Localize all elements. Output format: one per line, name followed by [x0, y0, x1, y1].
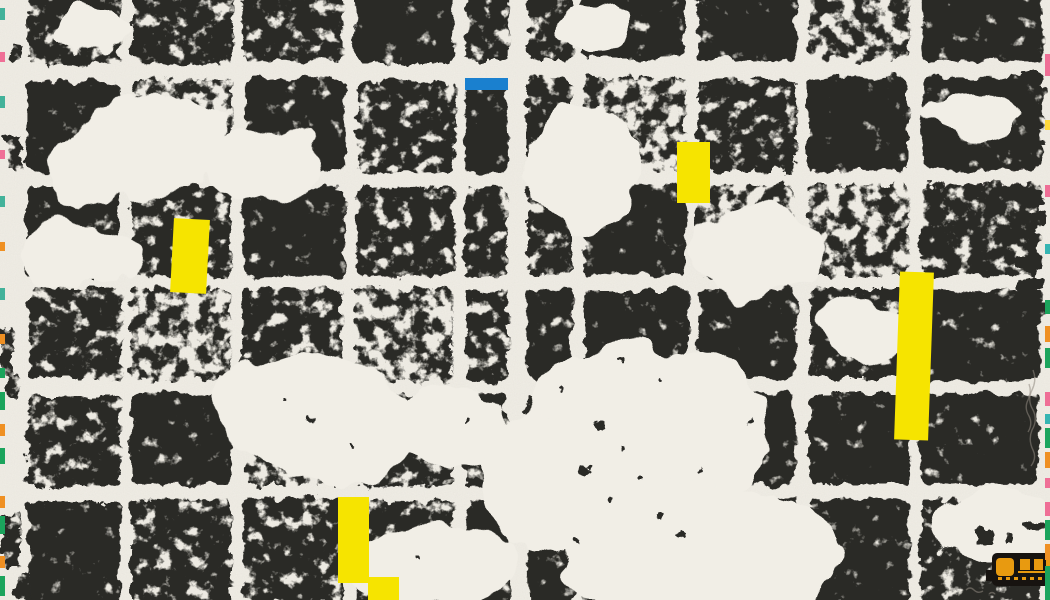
grid-cell [923, 0, 1042, 60]
edge-registration-strip-left [0, 368, 5, 378]
grid-cell [920, 393, 1039, 484]
edge-registration-strip-left [0, 448, 5, 464]
train-glyph-dot [998, 577, 1002, 580]
grid-cell [808, 184, 909, 275]
margin-ink-smudge [0, 326, 13, 372]
ink-speckle [348, 443, 352, 447]
margin-ink-smudge [16, 574, 30, 600]
ink-speckle [607, 497, 613, 503]
edge-registration-strip-right [1045, 392, 1050, 406]
edge-registration-strip-left [0, 424, 5, 436]
blue-tape-mark [465, 78, 508, 90]
edge-registration-strip-left [0, 576, 5, 596]
grid-cell [30, 289, 122, 380]
artwork-photo [0, 0, 1050, 600]
ink-void [485, 410, 605, 550]
grid-cell [133, 0, 233, 63]
ink-speckle [619, 445, 625, 451]
grid-cell [243, 0, 343, 60]
grid-cell [28, 395, 120, 486]
yellow-tape-mark [170, 218, 210, 294]
edge-registration-strip-left [0, 556, 5, 568]
train-glyph-dot [1022, 577, 1026, 580]
margin-ink-smudge [7, 372, 18, 398]
edge-registration-strip-left [0, 242, 5, 251]
ink-speckle [677, 532, 683, 538]
grid-cell [244, 498, 344, 600]
grid-cell [921, 290, 1040, 381]
ink-void [935, 91, 1015, 139]
ink-speckle [580, 465, 590, 475]
grid-cell [131, 288, 231, 379]
edge-registration-strip-left [0, 196, 5, 207]
ink-speckle [902, 467, 908, 473]
margin-ink-dash [1024, 86, 1046, 94]
ink-speckle [637, 475, 643, 481]
ink-speckle [307, 417, 313, 423]
margin-ink-dash [1004, 532, 1012, 544]
edge-registration-strip-left [0, 8, 5, 20]
edge-registration-strip-right [1045, 348, 1050, 368]
edge-registration-strip-left [0, 496, 5, 508]
margin-ink-smudge [6, 136, 23, 170]
edge-registration-strip-right [1045, 520, 1050, 540]
train-glyph-dot [1038, 577, 1042, 580]
margin-ink-dash [1026, 520, 1044, 528]
margin-ink-dash [1028, 360, 1042, 366]
edge-registration-strip-right [1045, 544, 1050, 560]
grid-cell [132, 499, 232, 600]
ink-speckle [596, 421, 604, 429]
grid-cell [358, 81, 456, 173]
grid-cell [28, 502, 120, 600]
grid-cell [465, 187, 507, 277]
edge-registration-strip-right [1045, 244, 1050, 254]
edge-registration-strip-left [0, 516, 5, 534]
margin-ink-dash [1017, 278, 1044, 291]
ink-speckle [698, 468, 702, 472]
ink-speckle [418, 558, 422, 562]
grid-cell [699, 79, 797, 171]
margin-ink-dash [1030, 140, 1045, 146]
edge-registration-strip-right [1045, 566, 1050, 600]
edge-registration-strip-right [1045, 428, 1050, 448]
ink-speckle [572, 537, 578, 543]
margin-ink-dash [978, 530, 994, 544]
train-glyph-dot [1006, 577, 1010, 580]
train-glyph-window [1034, 559, 1043, 570]
train-glyph-dot [1014, 577, 1018, 580]
margin-ink-dash [1015, 256, 1043, 270]
grid-cell [698, 0, 796, 59]
ink-void [55, 10, 125, 50]
margin-ink-dash [1020, 190, 1045, 205]
yellow-tape-mark [368, 577, 399, 600]
margin-ink-smudge [12, 44, 23, 60]
margin-ink-dash [1022, 212, 1045, 224]
yellow-tape-mark [894, 271, 934, 440]
edge-registration-strip-right [1045, 326, 1050, 342]
ink-void [550, 8, 630, 52]
ink-speckle [283, 398, 287, 402]
edge-registration-strip-right [1045, 120, 1050, 130]
yellow-tape-mark [338, 497, 369, 583]
edge-registration-strip-right [1045, 185, 1050, 197]
edge-registration-strip-right [1045, 300, 1050, 314]
edge-registration-strip-right [1045, 502, 1050, 516]
edge-registration-strip-left [0, 96, 5, 108]
ink-void [530, 103, 640, 227]
margin-ink-dash [1022, 72, 1046, 82]
grid-cell [807, 78, 908, 170]
grid-cell [467, 0, 509, 61]
edge-registration-strip-left [0, 288, 5, 300]
train-glyph-dot [1030, 577, 1034, 580]
ink-speckle [656, 511, 664, 519]
edge-registration-strip-left [0, 52, 5, 62]
ink-speckle [558, 388, 562, 392]
edge-registration-strip-right [1045, 452, 1050, 468]
train-glyph-cab [996, 558, 1014, 576]
grid-cell [357, 187, 455, 277]
ink-speckle [465, 417, 471, 423]
ink-speckle [618, 358, 622, 362]
edge-registration-strip-right [1045, 54, 1050, 76]
edge-registration-strip-left [0, 334, 5, 344]
artwork-canvas [0, 0, 1050, 600]
train-glyph-window [1020, 559, 1030, 570]
grid-cell [355, 0, 453, 64]
yellow-tape-mark [677, 142, 710, 203]
margin-ink-dash [1023, 304, 1045, 314]
grid-cell [355, 289, 453, 380]
grid-cell [465, 81, 507, 173]
edge-registration-strip-right [1045, 414, 1050, 424]
edge-registration-strip-right [1045, 478, 1050, 488]
ink-speckle [747, 417, 753, 423]
grid-cell [809, 0, 910, 60]
edge-registration-strip-left [0, 150, 5, 159]
ink-speckle [658, 378, 662, 382]
edge-registration-strip-left [0, 392, 5, 410]
grid-cell [467, 290, 509, 381]
ink-speckle [543, 348, 547, 352]
